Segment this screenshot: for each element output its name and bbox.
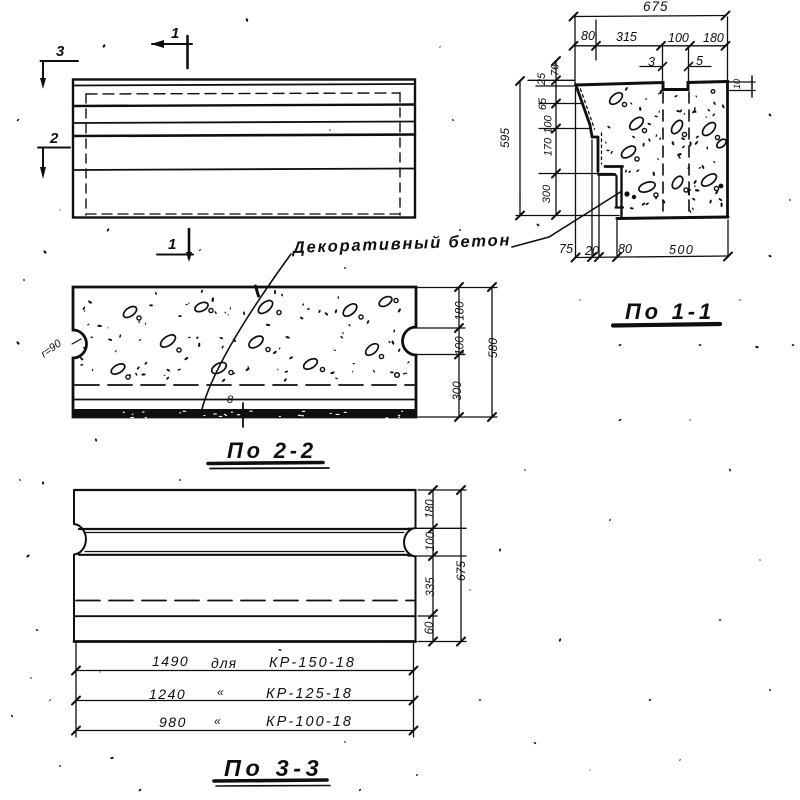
svg-text:КР-100-18: КР-100-18	[266, 714, 353, 730]
svg-text:335: 335	[425, 577, 437, 597]
svg-text:100: 100	[425, 531, 437, 551]
svg-text:8: 8	[227, 394, 234, 406]
svg-text:76: 76	[550, 63, 562, 76]
svg-text:1240: 1240	[149, 686, 186, 702]
svg-text:595: 595	[498, 128, 512, 148]
svg-text:675: 675	[643, 0, 669, 14]
svg-text:180: 180	[703, 31, 724, 45]
svg-text:По 1-1: По 1-1	[625, 299, 715, 324]
svg-text:1490: 1490	[152, 653, 189, 669]
svg-text:170: 170	[543, 137, 555, 156]
svg-text:10: 10	[732, 79, 742, 89]
svg-text:80: 80	[618, 242, 632, 256]
svg-text:100: 100	[455, 336, 467, 356]
svg-text:180: 180	[455, 301, 467, 321]
svg-text:По 3-3: По 3-3	[224, 755, 323, 781]
svg-text:60: 60	[424, 621, 436, 634]
svg-text:25: 25	[536, 72, 548, 86]
svg-text:300: 300	[452, 381, 464, 401]
svg-text:100: 100	[668, 31, 689, 45]
svg-text:580: 580	[486, 338, 500, 358]
svg-text:100: 100	[543, 114, 555, 133]
svg-text:3: 3	[648, 55, 655, 69]
svg-text:1: 1	[168, 236, 176, 253]
svg-text:20: 20	[584, 244, 599, 258]
svg-text:2: 2	[49, 130, 59, 147]
svg-text:80: 80	[581, 29, 595, 43]
svg-text:180: 180	[425, 499, 437, 519]
svg-text:675: 675	[454, 561, 468, 581]
svg-text:65: 65	[537, 97, 549, 110]
svg-text:1: 1	[171, 25, 179, 42]
svg-text:980: 980	[159, 714, 187, 730]
svg-text:«: «	[217, 685, 224, 699]
svg-text:КР-125-18: КР-125-18	[266, 686, 353, 702]
svg-text:315: 315	[616, 30, 637, 44]
svg-text:3: 3	[56, 43, 65, 60]
svg-text:КР-150-18: КР-150-18	[269, 655, 356, 671]
svg-text:По 2-2: По 2-2	[227, 438, 317, 463]
svg-text:300: 300	[541, 184, 553, 203]
svg-text:«: «	[214, 714, 221, 728]
svg-text:5: 5	[696, 54, 703, 68]
svg-text:75: 75	[559, 242, 573, 256]
svg-text:500: 500	[669, 243, 694, 257]
svg-text:для: для	[211, 655, 237, 671]
